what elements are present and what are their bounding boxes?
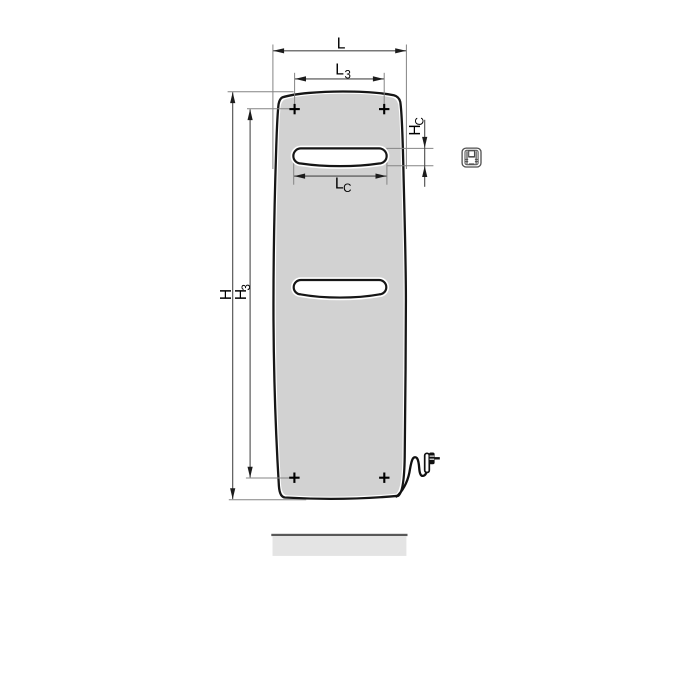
svg-text:L: L — [337, 36, 346, 53]
